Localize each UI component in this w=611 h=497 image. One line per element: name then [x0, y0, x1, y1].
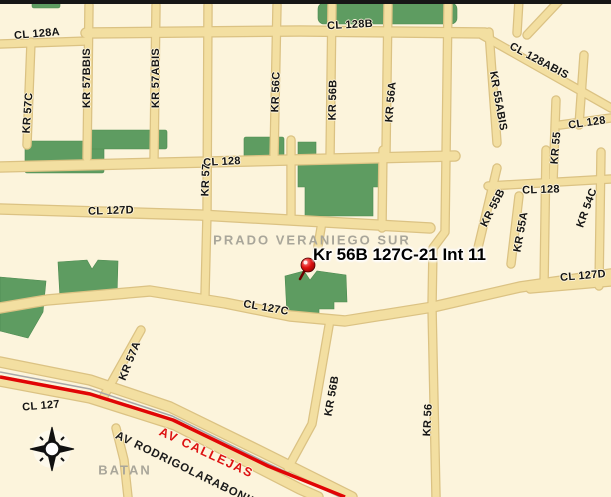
street-label: KR 55B — [478, 187, 507, 229]
street-label: CL 128 — [568, 114, 607, 131]
street-label: KR 56B — [327, 79, 340, 120]
street-label: KR 57A — [117, 340, 143, 382]
street-label: KR 55 — [549, 131, 564, 165]
marker-address-label[interactable]: Kr 56B 127C-21 Int 11 — [313, 245, 486, 265]
street-label: KR 55A — [512, 211, 531, 253]
street-label: KR 55ABIS — [487, 70, 509, 131]
street-label: KR 56 — [421, 403, 435, 436]
street-label: CL 128ABIS — [507, 40, 570, 81]
street-label: KR 57C — [21, 92, 36, 134]
street-label: CL 128A — [14, 26, 61, 42]
street-label: CL 128B — [327, 18, 373, 32]
map-top-border — [0, 0, 611, 4]
street-label: KR 57BBIS — [81, 48, 93, 108]
street-label: CL 127D — [88, 204, 134, 218]
map-labels-layer: CL 128ACL 128BCL 128ABISKR 55ABISKR 57CK… — [0, 0, 611, 497]
neighborhood-label: BATAN — [98, 463, 152, 478]
street-label: KR 56C — [269, 71, 282, 112]
street-label: CL 127C — [242, 298, 289, 318]
street-label: KR 54C — [574, 187, 599, 230]
street-label: KR 56A — [383, 81, 399, 123]
street-label: CL 128 — [522, 183, 560, 196]
street-label: CL 127 — [22, 398, 61, 413]
street-label: KR 56B — [323, 375, 342, 417]
street-label: KR 57 — [199, 163, 212, 196]
street-label: CL 127D — [560, 268, 607, 284]
map-canvas[interactable]: CL 128ACL 128BCL 128ABISKR 55ABISKR 57CK… — [0, 0, 611, 497]
street-label: KR 57ABIS — [150, 48, 162, 108]
